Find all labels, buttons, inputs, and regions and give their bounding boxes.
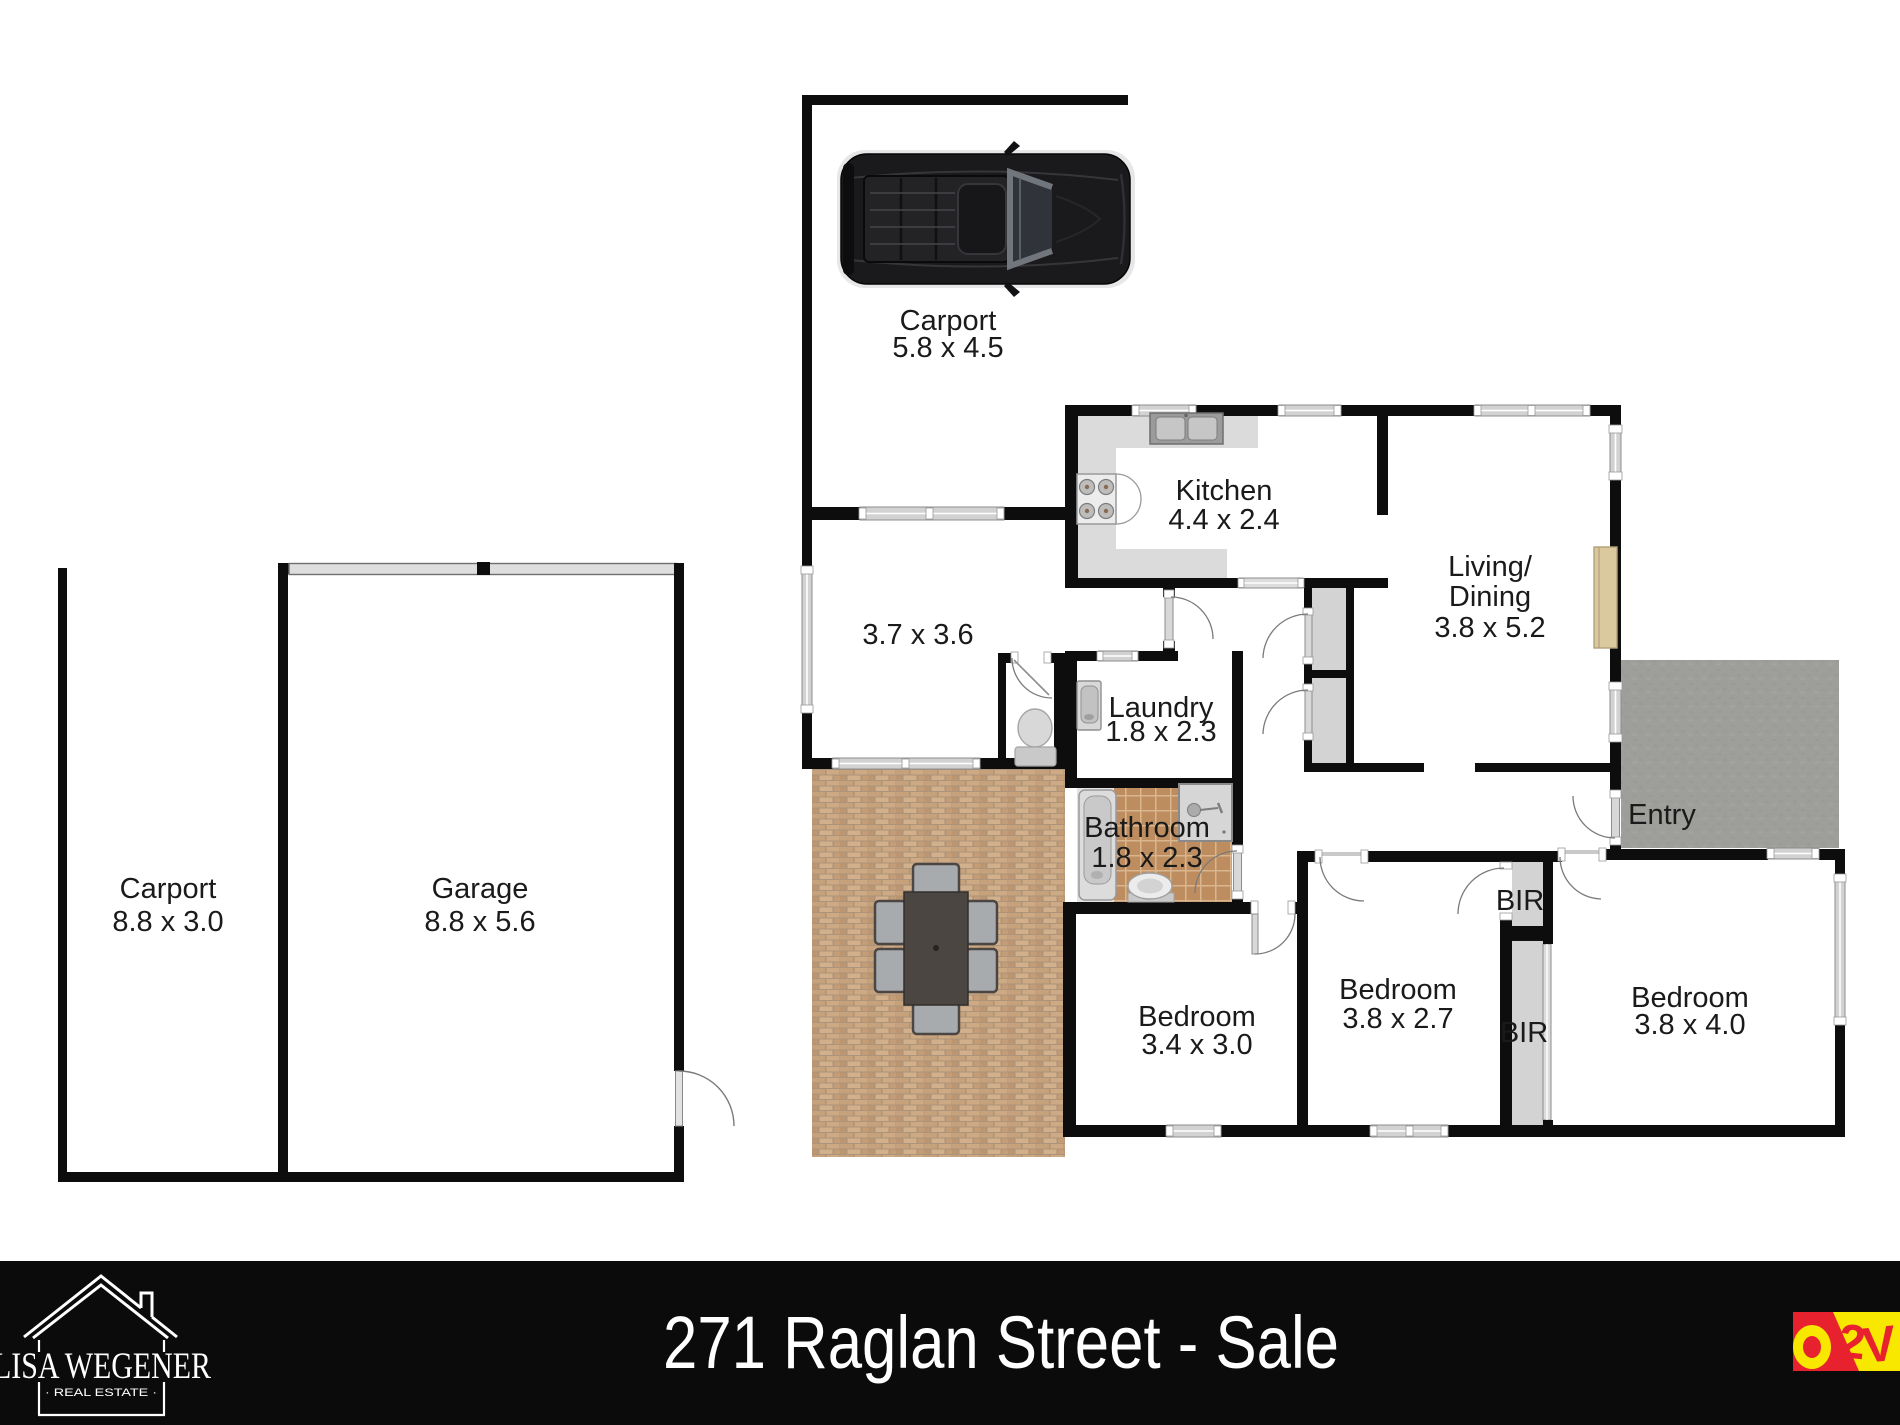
svg-text:1.8 x 2.3: 1.8 x 2.3 bbox=[1105, 716, 1216, 748]
svg-text:3.8 x 2.7: 3.8 x 2.7 bbox=[1342, 1003, 1453, 1035]
svg-text:Kitchen: Kitchen bbox=[1176, 475, 1273, 507]
svg-text:8.8 x 5.6: 8.8 x 5.6 bbox=[424, 906, 535, 938]
svg-text:LISA WEGENER: LISA WEGENER bbox=[0, 1346, 211, 1387]
svg-text:Living/: Living/ bbox=[1448, 551, 1533, 583]
svg-text:Dining: Dining bbox=[1449, 581, 1531, 613]
svg-text:3.4 x 3.0: 3.4 x 3.0 bbox=[1141, 1029, 1252, 1061]
svg-text:V: V bbox=[1860, 1315, 1900, 1374]
svg-text:5.8 x 4.5: 5.8 x 4.5 bbox=[892, 332, 1003, 364]
svg-text:· REAL ESTATE ·: · REAL ESTATE · bbox=[45, 1387, 157, 1399]
svg-text:3.7 x 3.6: 3.7 x 3.6 bbox=[862, 619, 973, 651]
svg-text:1.8 x 2.3: 1.8 x 2.3 bbox=[1091, 842, 1202, 874]
svg-text:BIR: BIR bbox=[1500, 1017, 1548, 1049]
svg-text:3.8 x 4.0: 3.8 x 4.0 bbox=[1634, 1009, 1745, 1041]
svg-text:4.4 x 2.4: 4.4 x 2.4 bbox=[1168, 504, 1279, 536]
svg-text:271 Raglan Street - Sale: 271 Raglan Street - Sale bbox=[663, 1301, 1339, 1384]
svg-text:3.8 x 5.2: 3.8 x 5.2 bbox=[1434, 612, 1545, 644]
svg-text:Bathroom: Bathroom bbox=[1084, 812, 1210, 844]
svg-text:Bedroom: Bedroom bbox=[1339, 974, 1457, 1006]
svg-text:BIR: BIR bbox=[1496, 885, 1544, 917]
svg-text:Entry: Entry bbox=[1628, 799, 1696, 831]
svg-text:Garage: Garage bbox=[432, 873, 529, 905]
svg-text:8.8 x 3.0: 8.8 x 3.0 bbox=[112, 906, 223, 938]
svg-text:Carport: Carport bbox=[120, 873, 217, 905]
